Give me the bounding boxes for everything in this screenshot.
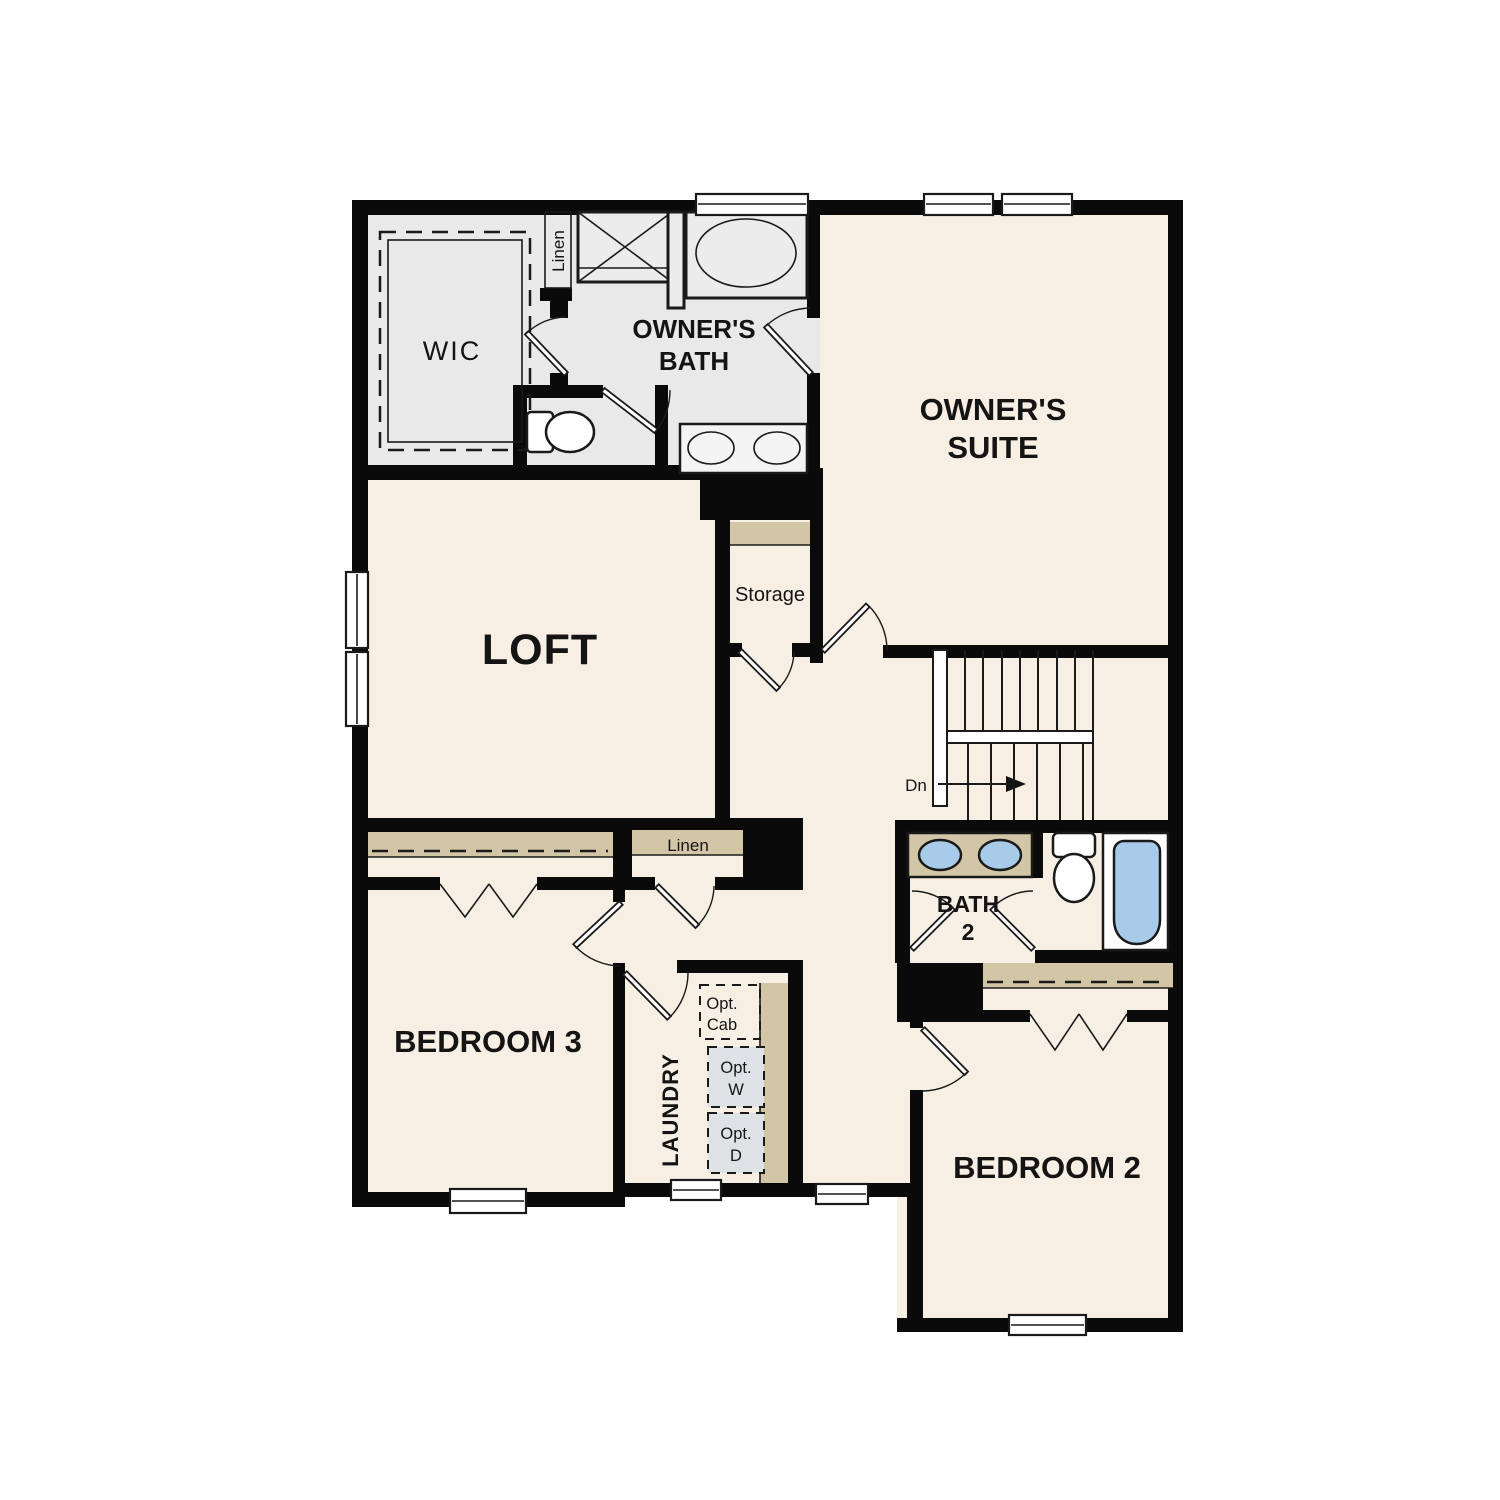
bath2-vanity-fixture: [908, 833, 1032, 877]
bedroom3-label: BEDROOM 3: [394, 1024, 582, 1059]
floor-plan-page: WIC Linen OWNER'S BATH OWNER'S SUITE LOF…: [0, 0, 1500, 1500]
loft-label: LOFT: [482, 626, 598, 674]
wall-segment: [352, 877, 440, 890]
window: [346, 652, 368, 726]
wall-segment: [910, 1090, 923, 1197]
wall-segment: [807, 373, 820, 465]
wall-segment: [1127, 1010, 1173, 1022]
window: [924, 194, 993, 215]
bedroom2-label: BEDROOM 2: [953, 1150, 1141, 1185]
owners-bath-label-1: OWNER'S: [632, 314, 755, 344]
wall-segment: [655, 385, 668, 465]
bath2-tub-fixture: [1103, 833, 1168, 950]
wall-segment: [895, 820, 1183, 833]
wic-label: WIC: [423, 336, 481, 366]
linen-hall-floor: [632, 855, 743, 877]
owners-toilet-fixture: [527, 412, 594, 452]
bath2-label-2: 2: [962, 919, 975, 945]
window: [696, 194, 808, 215]
linen-upper-label: Linen: [549, 230, 568, 272]
opt-cab-label-1: Opt.: [706, 995, 737, 1013]
wall-segment: [550, 300, 568, 318]
opt-cab-label-2: Cab: [707, 1016, 737, 1034]
window: [450, 1189, 526, 1213]
stair-rail-middle: [947, 731, 1093, 743]
wall-segment: [807, 215, 820, 318]
wall-segment: [910, 1022, 923, 1028]
owners-bath-label-2: BATH: [659, 346, 729, 376]
wall-segment: [907, 1197, 923, 1322]
wall-segment: [613, 963, 625, 1192]
owners-suite-label-2: SUITE: [947, 430, 1038, 465]
storage-shelf: [730, 522, 810, 545]
bedroom2-closet-shelf: [983, 963, 1173, 988]
wall-segment: [1035, 950, 1183, 963]
bath2-label-1: BATH: [937, 891, 999, 917]
wall-segment: [1168, 200, 1183, 1332]
window: [346, 572, 368, 648]
window: [1002, 194, 1072, 215]
opt-dryer-label-2: D: [730, 1147, 742, 1165]
wall-segment: [983, 1010, 1030, 1022]
owners-vanity-fixture: [680, 424, 807, 473]
wall-segment: [715, 643, 742, 657]
wall-segment: [537, 877, 625, 890]
window: [816, 1184, 868, 1204]
bedroom3-closet-shelf: [368, 832, 613, 857]
opt-dryer-label-1: Opt.: [720, 1125, 751, 1143]
storage-label: Storage: [735, 584, 805, 606]
wall-segment: [540, 288, 572, 301]
wall-segment: [352, 818, 620, 832]
owners-suite-label-1: OWNER'S: [920, 392, 1067, 427]
opt-washer-label-2: W: [728, 1081, 744, 1099]
wall-segment: [897, 963, 983, 1022]
window: [1009, 1315, 1086, 1335]
wall-segment: [513, 385, 603, 398]
wall-segment: [883, 645, 1183, 658]
linen-hall-door-gap: [655, 877, 715, 890]
stair-rail-left: [933, 650, 947, 806]
wall-segment: [810, 468, 823, 663]
wall-segment: [788, 960, 803, 1197]
linen-hall-label: Linen: [667, 836, 709, 855]
laundry-label: LAUNDRY: [658, 1053, 683, 1167]
owners-tub-fixture: [686, 212, 807, 298]
floor-bedroom2-ext: [897, 1197, 1183, 1332]
bath2-toilet-fixture: [1053, 833, 1095, 902]
window: [671, 1180, 721, 1200]
opt-washer-label-1: Opt.: [720, 1059, 751, 1077]
floor-plan: WIC Linen OWNER'S BATH OWNER'S SUITE LOF…: [0, 0, 1500, 1500]
stairs-down-label: Dn: [905, 776, 927, 795]
wall-segment: [792, 643, 823, 657]
wall-segment: [677, 960, 803, 973]
